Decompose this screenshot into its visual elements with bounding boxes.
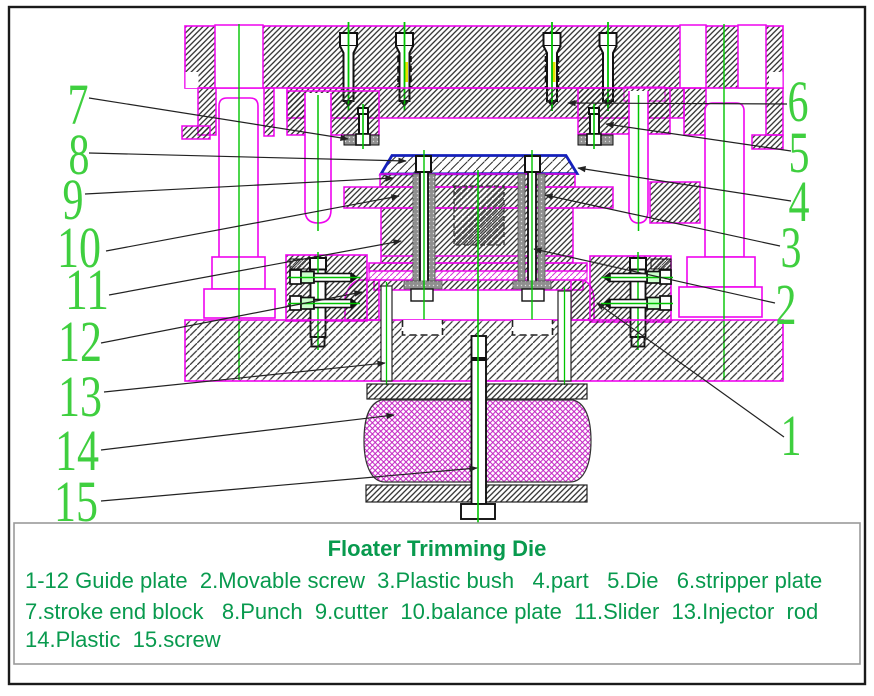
svg-text:1: 1 bbox=[781, 403, 802, 468]
svg-text:1-12 Guide plate 2.Movable sc: 1-12 Guide plate 2.Movable screw 3.Plast… bbox=[25, 568, 822, 593]
svg-text:3: 3 bbox=[781, 215, 802, 280]
svg-text:14.Plastic 15.screw: 14.Plastic 15.screw bbox=[25, 627, 221, 652]
svg-text:2: 2 bbox=[776, 272, 797, 337]
svg-text:7.stroke end block 8.Punch: 7.stroke end block 8.Punch 9.cutter 10.b… bbox=[25, 599, 818, 624]
svg-text:Floater Trimming Die: Floater Trimming Die bbox=[328, 536, 547, 561]
